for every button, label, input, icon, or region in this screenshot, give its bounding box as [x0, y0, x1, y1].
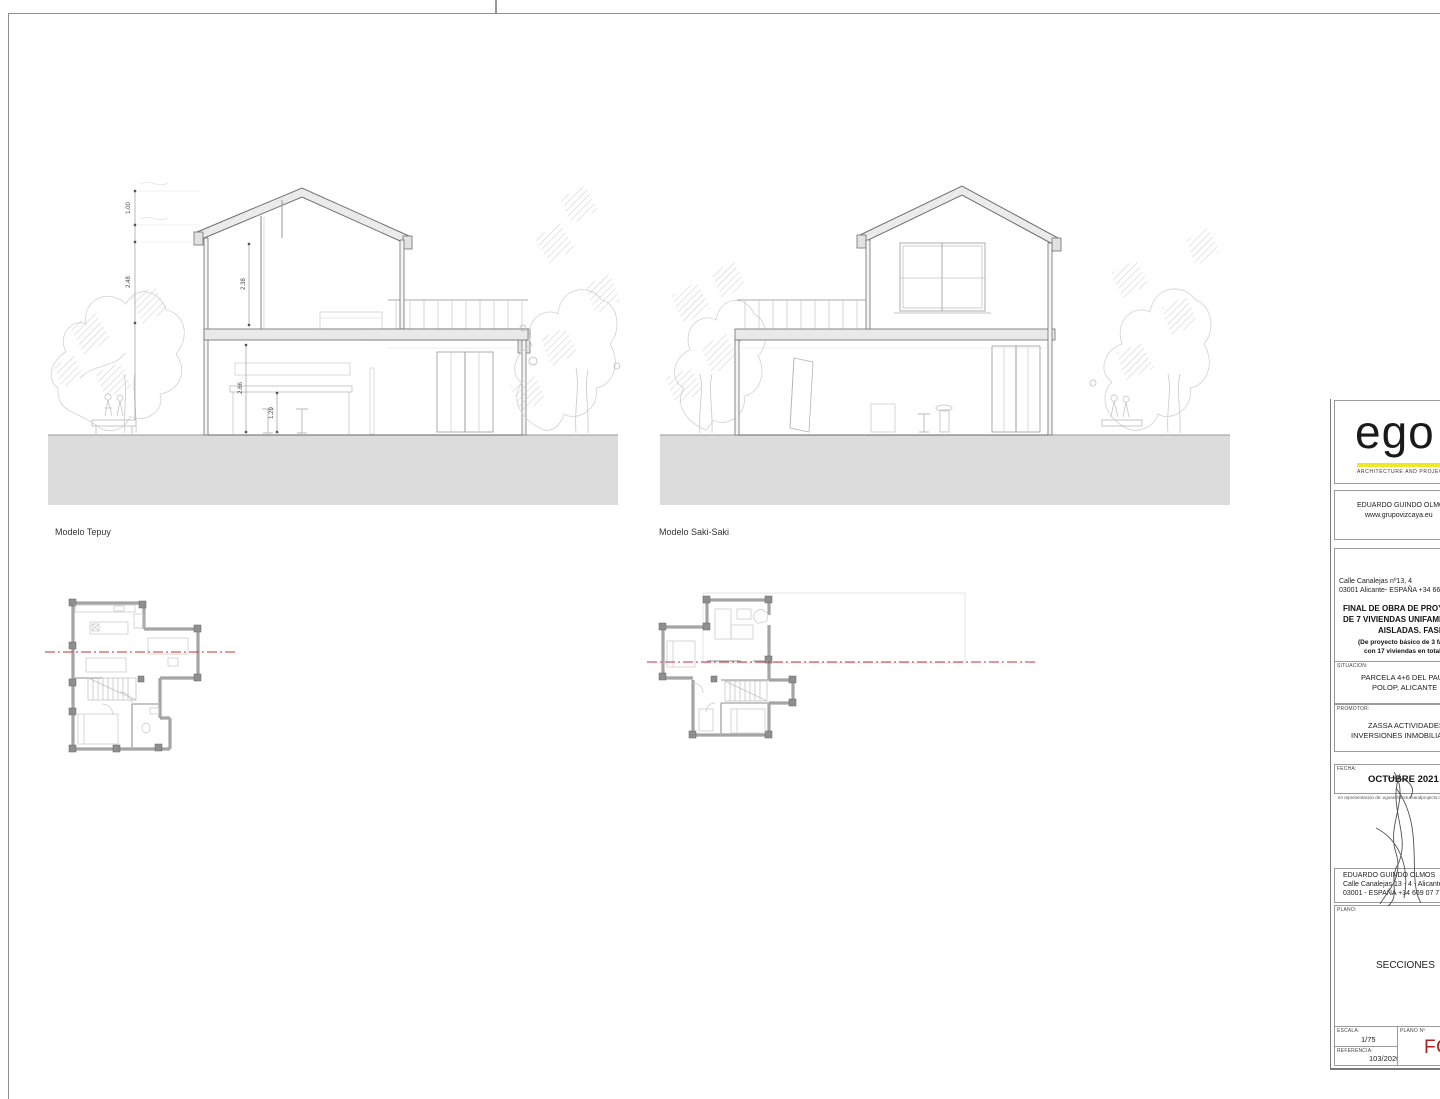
address-line2: 03001 Alicante- ESPAÑA +34 669 07: [1339, 587, 1440, 594]
project-subtitle-line1: (De proyecto básico de 3 fas: [1358, 639, 1440, 646]
open-door: [790, 358, 813, 432]
building-saki: [735, 186, 1061, 435]
referencia-box: REFERENCIA: 103/2020: [1334, 1046, 1398, 1066]
dimension-label: 2.48: [126, 276, 132, 288]
situacion-label: SITUACION:: [1337, 663, 1368, 669]
section-saki-label: Modelo Saki-Saki: [659, 527, 729, 537]
fecha-label: FECHA:: [1337, 766, 1357, 772]
crop-mark-icon: [495, 0, 497, 13]
situacion-box: SITUACION: PARCELA 4+6 DEL PAU-1 POLOP, …: [1334, 661, 1440, 704]
plano-label: PLANO:: [1337, 907, 1357, 913]
escala-label: ESCALA:: [1337, 1028, 1360, 1034]
tall-window: [992, 346, 1040, 432]
referencia-value: 103/2020: [1369, 1054, 1400, 1063]
logo-accent-bar: [1357, 463, 1440, 467]
titleblock: ego ARCHITECTURE AND PROJECT EDUARDO GUI…: [1330, 399, 1440, 1070]
logo-tagline: ARCHITECTURE AND PROJECT: [1357, 469, 1440, 475]
project-subtitle-line2: con 17 viviendas en total): [1364, 648, 1440, 655]
washbasin: [936, 405, 952, 432]
building-tepuy: [194, 188, 530, 435]
sheet-border: [8, 13, 1440, 1099]
sliding-door: [437, 352, 493, 432]
project-title-line3: AISLADAS. FASE 1: [1378, 626, 1440, 635]
escala-value: 1/75: [1361, 1035, 1376, 1044]
situacion-line2: POLOP, ALICANTE: [1372, 683, 1437, 692]
section-tepuy-label: Modelo Tepuy: [55, 527, 111, 537]
plan-walls: [663, 600, 793, 735]
promotor-line2: INVERSIONES INMOBILIARI: [1351, 731, 1440, 740]
terrain: [48, 435, 618, 505]
plan-stairs: [88, 678, 136, 700]
section-tepuy-drawing: 1.00 2.48 2.38 2.66 1.20: [40, 178, 620, 508]
window: [894, 243, 991, 313]
escala-box: ESCALA: 1/75: [1334, 1026, 1398, 1048]
promotor-label: PROMOTOR:: [1337, 706, 1370, 712]
plano-box: PLANO: SECCIONES: [1334, 905, 1440, 1028]
plan-saki-drawing: [645, 585, 1040, 753]
logo: ego: [1355, 409, 1435, 455]
signature: [1366, 768, 1436, 908]
dimension-label: 2.66: [238, 382, 244, 394]
plano-num-value: FO-: [1424, 1037, 1440, 1059]
plan-tepuy-drawing: [42, 586, 242, 764]
terrain: [660, 435, 1230, 505]
referencia-label: REFERENCIA:: [1337, 1048, 1373, 1054]
plano-value: SECCIONES: [1376, 960, 1435, 971]
tree-right: [1090, 228, 1220, 433]
dimension-label: 1.00: [126, 202, 132, 214]
address-line1: Calle Canalejas nº13, 4: [1339, 578, 1412, 585]
project-box: Calle Canalejas nº13, 4 03001 Alicante- …: [1334, 548, 1440, 664]
plano-num-label: PLANO Nº: [1400, 1028, 1425, 1034]
dimension-label: 2.38: [241, 278, 247, 290]
project-title-line1: FINAL DE OBRA DE PROYE: [1343, 604, 1440, 613]
terrace-outline: [703, 593, 965, 663]
logo-box: ego ARCHITECTURE AND PROJECT: [1334, 400, 1440, 484]
firm-box: EDUARDO GUINDO OLMOS www.grupovizcaya.eu: [1334, 490, 1440, 540]
promotor-line1: ZASSA ACTIVIDADES E: [1368, 721, 1440, 730]
project-title-line2: DE 7 VIVIENDAS UNIFAMILI: [1343, 615, 1440, 624]
plano-num-box: PLANO Nº FO-: [1397, 1026, 1440, 1066]
tree-right: [510, 186, 620, 433]
section-saki-drawing: [656, 178, 1236, 508]
firm-web: www.grupovizcaya.eu: [1365, 512, 1433, 519]
plan-columns: [69, 599, 201, 752]
plan-stairs: [725, 681, 767, 701]
promotor-box: PROMOTOR: ZASSA ACTIVIDADES E INVERSIONE…: [1334, 704, 1440, 752]
situacion-line1: PARCELA 4+6 DEL PAU-1: [1361, 673, 1440, 682]
firm-name: EDUARDO GUINDO OLMOS: [1357, 502, 1440, 509]
people-figures: [92, 394, 136, 434]
dimension-label: 1.20: [269, 407, 275, 419]
tree-left: [666, 262, 766, 433]
